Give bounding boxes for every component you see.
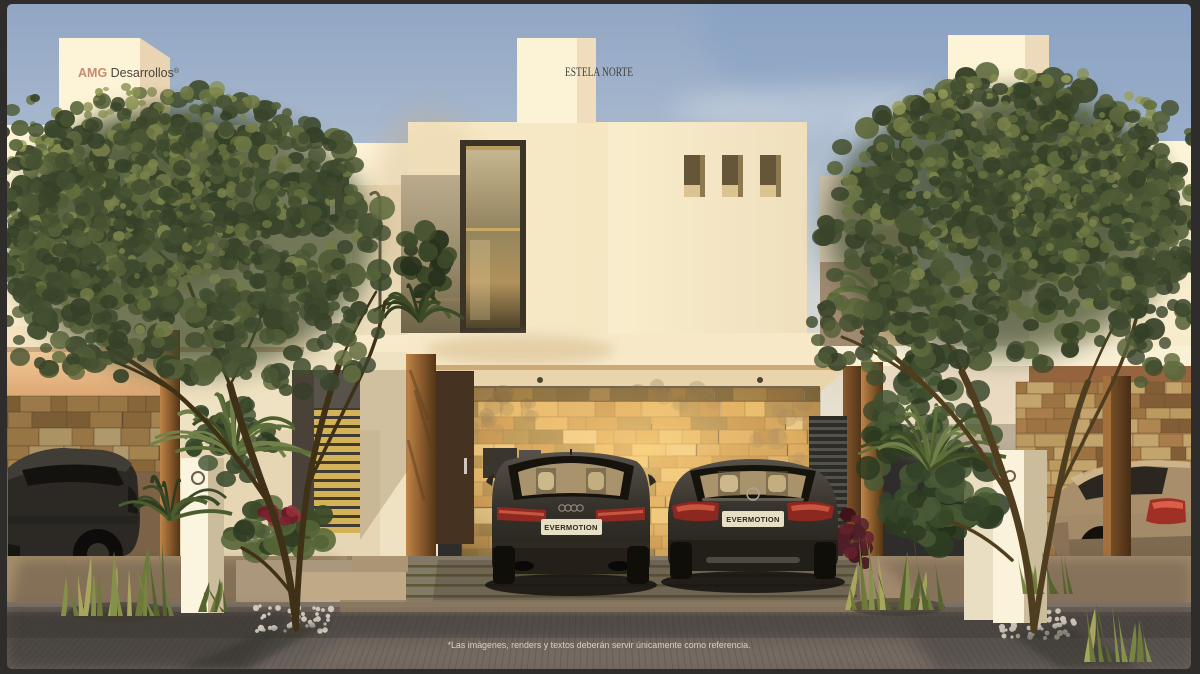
svg-text:ESTELA NORTE: ESTELA NORTE [565, 64, 633, 79]
svg-text:EVERMOTION: EVERMOTION [726, 515, 779, 524]
svg-text:AMG Desarrollos®: AMG Desarrollos® [78, 66, 180, 80]
svg-text:*Las imágenes, renders y texto: *Las imágenes, renders y textos deberán … [448, 640, 751, 651]
svg-text:EVERMOTION: EVERMOTION [544, 523, 597, 532]
